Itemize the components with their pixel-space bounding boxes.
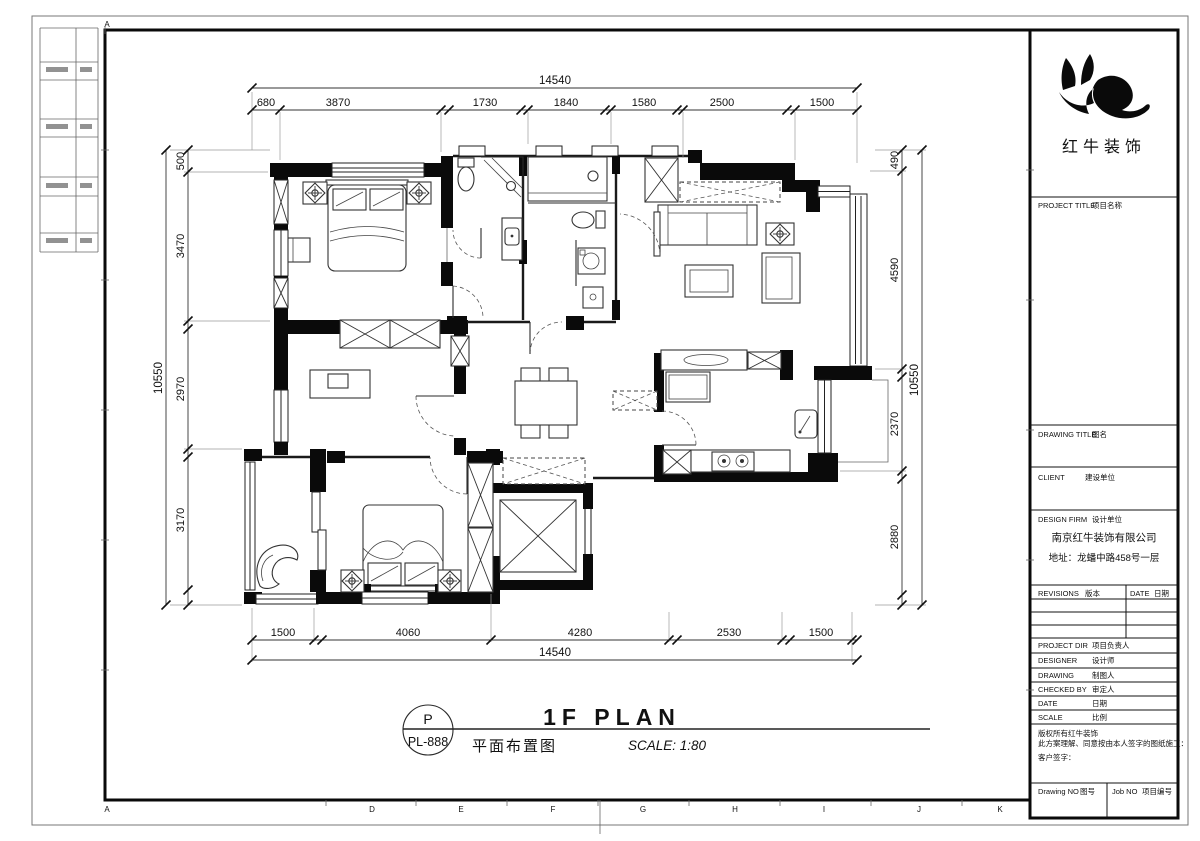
grid-letter: H [732,805,738,814]
floor-plan-windows [332,163,424,177]
dim-left-seg: 3470 [175,234,187,258]
firm-address: 地址：龙蟠中路458号一层 [1049,552,1160,564]
dim-bottom-seg: 4060 [396,627,420,639]
drawing-no-label-cn: 图号 [1080,787,1095,796]
design-firm-label-cn: 设计单位 [1092,514,1122,524]
grid-letter: G [640,805,646,814]
fold-strip [40,28,98,252]
grid-letter: J [917,805,921,814]
dim-right-seg: 490 [889,151,901,169]
grid-letter: I [823,805,825,814]
grid-letter: E [458,805,463,814]
company-name: 红牛装饰 [1062,138,1146,156]
revisions-label-cn: 版本 [1085,588,1101,598]
dim-top-seg: 2500 [710,97,734,109]
grid-letter: A [104,805,110,814]
signature-note: 客户签字： [1038,752,1076,762]
revisions-label: REVISIONS [1038,589,1079,598]
agreement-note: 此方案理解、同意按由本人签字的图纸施工： [1038,738,1188,748]
plan-title-en: 1F PLAN [543,704,681,730]
dim-top-seg: 1580 [632,97,656,109]
grid-letter-top: A [104,20,110,29]
design-firm-label: DESIGN FIRM [1038,515,1087,524]
drawing-title-label: DRAWING TITLE [1038,430,1096,439]
scale-label-cn: 比例 [1092,712,1107,722]
plan-title-cn: 平面布置图 [472,738,557,755]
scale-label: SCALE [1038,713,1063,722]
checked-by-label-cn: 审定人 [1092,684,1115,694]
rev-date-label: DATE [1130,589,1149,598]
date-label-cn: 日期 [1092,699,1107,708]
project-dir-label-cn: 项目负责人 [1092,640,1130,650]
designer-label-cn: 设计师 [1092,655,1115,665]
dim-right-seg: 4590 [889,258,901,282]
drawing-title-label-cn: 图名 [1092,429,1107,439]
designer-label: DESIGNER [1038,656,1078,665]
dim-right-total: 10550 [909,364,921,396]
dim-right-seg: 2370 [889,412,901,436]
dim-bottom-seg: 1500 [809,627,833,639]
plan-title: P PL-888 1F PLAN 平面布置图 SCALE: 1:80 [403,704,930,755]
dim-top-seg: 680 [257,97,275,109]
copyright-note: 版权所有红牛装饰 [1038,728,1098,738]
grid-letter: K [997,805,1003,814]
dim-bottom-seg: 4280 [568,627,592,639]
firm-name: 南京红牛装饰有限公司 [1052,531,1157,544]
drawing-sheet: A A D E F G H I J K [0,0,1200,841]
dim-left-seg: 500 [175,152,187,170]
dim-bottom-seg: 1500 [271,627,295,639]
dim-bottom-seg: 2530 [717,627,741,639]
project-dir-label: PROJECT DIR [1038,641,1088,650]
drawing-no-label: Drawing NO [1038,787,1079,796]
dim-left-seg: 2970 [175,377,187,401]
drawing-label-cn: 制图人 [1092,670,1115,680]
job-no-label: Job NO [1112,787,1138,796]
rev-date-label-cn: 日期 [1154,589,1169,598]
stamp-code: PL-888 [408,735,448,749]
company-logo: 红牛装饰 [1059,54,1150,156]
drawing-label: DRAWING [1038,671,1074,680]
grid-letter: D [369,805,375,814]
job-no-label-cn: 项目编号 [1142,786,1172,796]
dim-top-seg: 1840 [554,97,578,109]
client-label: CLIENT [1038,473,1065,482]
grid-letter: F [551,805,556,814]
dim-right-seg: 2880 [889,525,901,549]
dim-top-seg: 3870 [326,97,350,109]
client-label-cn: 建设单位 [1085,472,1115,482]
dim-left-seg: 3170 [175,508,187,532]
dim-top-total: 14540 [539,75,571,87]
dim-top-seg: 1730 [473,97,497,109]
plan-scale-note: SCALE: 1:80 [628,738,707,753]
project-title-label: PROJECT TITLE [1038,201,1095,210]
dim-top-seg: 1500 [810,97,834,109]
dim-bottom-total: 14540 [539,647,571,659]
dim-left-total: 10550 [153,362,165,394]
title-block: 红牛装饰 PROJECT TITLE 项目名称 DRAWING TITL [1030,54,1188,818]
checked-by-label: CHECKED BY [1038,685,1087,694]
project-title-label-cn: 项目名称 [1092,200,1122,210]
date-label: DATE [1038,699,1057,708]
stamp-letter: P [423,711,432,727]
